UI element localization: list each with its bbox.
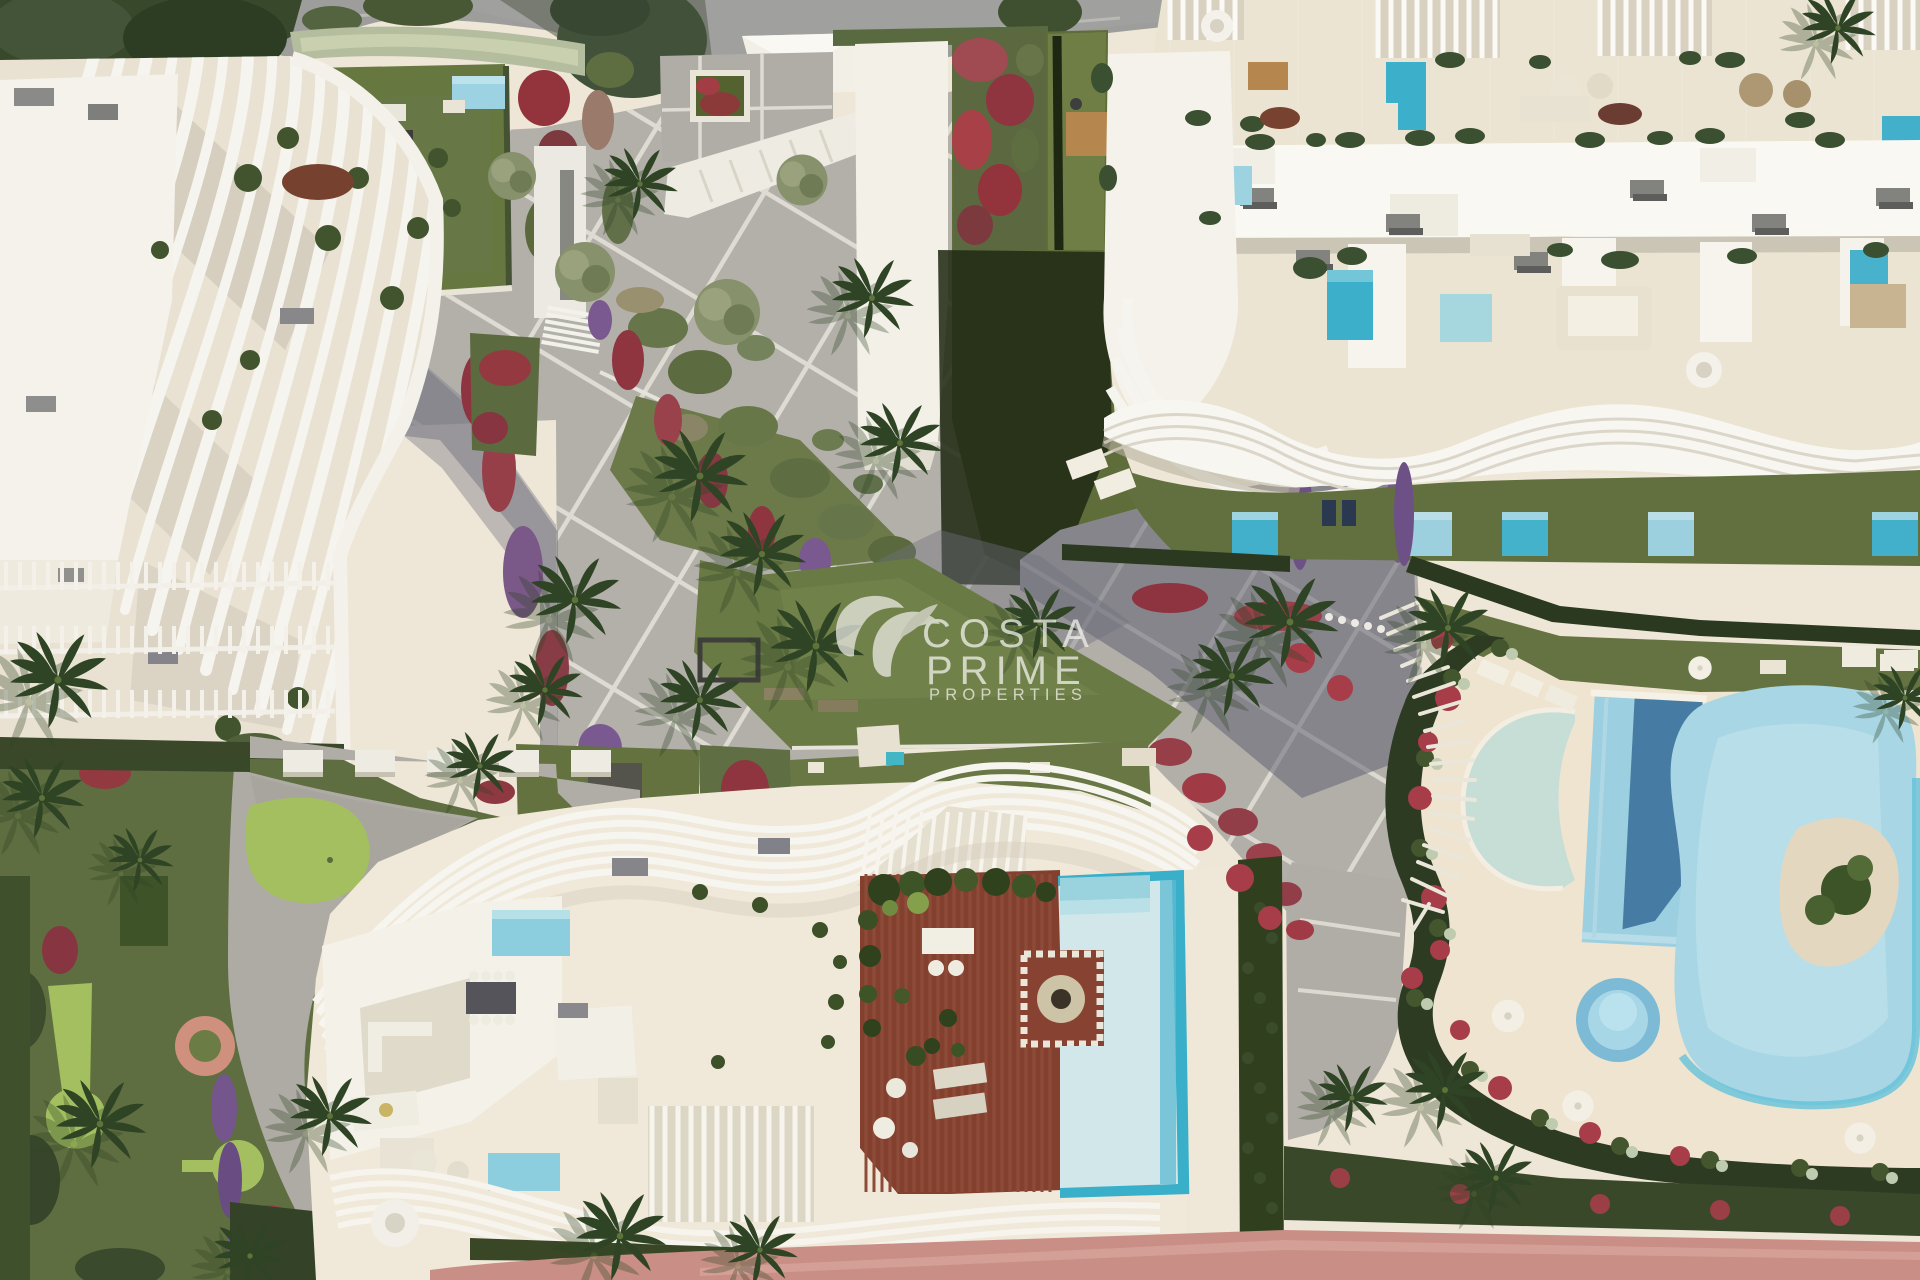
svg-text:PROPERTIES: PROPERTIES (929, 686, 1087, 704)
